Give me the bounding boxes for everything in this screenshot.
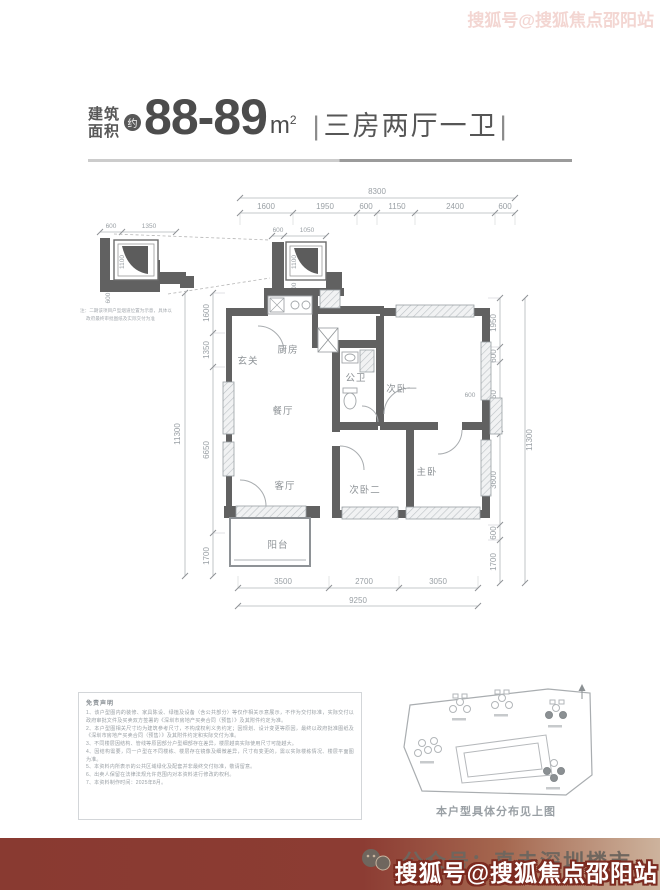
svg-text:3050: 3050 <box>429 577 447 586</box>
site-caption: 本户型具体分布见上图 <box>436 804 556 818</box>
svg-text:2400: 2400 <box>446 202 464 211</box>
area-value: 88-89 <box>144 92 267 142</box>
svg-text:1100: 1100 <box>291 255 298 269</box>
svg-text:600: 600 <box>105 292 112 303</box>
layout-text: |三房两厅一卫| <box>311 104 511 143</box>
svg-text:1350: 1350 <box>142 223 157 230</box>
area-prefix-line2: 面积 <box>88 123 120 140</box>
area-unit: m2 <box>270 112 297 140</box>
watermark-bottom: 搜狐号@搜狐焦点邵阳站 <box>395 854 658 888</box>
room-master: 主卧 <box>416 466 437 478</box>
room-bed2: 次卧二 <box>349 484 381 496</box>
disclaimer-item: 6、出卖人保留在法律法规允许范围内对本资料进行修改的权利。 <box>86 772 354 780</box>
area-prefix-line1: 建筑 <box>88 106 120 123</box>
room-bed1: 次卧一 <box>386 383 418 395</box>
svg-text:1950: 1950 <box>316 202 334 211</box>
svg-text:1950: 1950 <box>489 314 498 332</box>
flue-callout-detail: 600 1350 1100 600 注：二期该项目户型烟道位置为示意，具体以 政… <box>80 223 270 322</box>
svg-text:1600: 1600 <box>202 304 211 322</box>
svg-text:600: 600 <box>498 202 512 211</box>
room-kitchen: 厨房 <box>277 344 298 356</box>
disclaimer-item: 3、不同楼层因结构、管线等原因部分户型细部存在差异，楼层越高实际使用尺寸可能越大… <box>86 741 354 749</box>
dim-right-total: 11300 <box>525 429 534 451</box>
area-prefix: 建筑 面积 <box>88 106 120 141</box>
room-living: 客厅 <box>274 480 295 492</box>
disclaimer-item: 2、本户型图相关尺寸均为建筑参考尺寸，不构成权利义务约定；因规划、设计变更等原因… <box>86 726 354 742</box>
floorplan-page: 搜狐号@搜狐焦点邵阳站 建筑 面积 约 88-89 m2 |三房两厅一卫| 83… <box>0 0 660 890</box>
room-bath: 公卫 <box>345 373 366 384</box>
svg-text:1100: 1100 <box>119 255 126 269</box>
dim-bottom-total: 9250 <box>349 596 367 605</box>
disclaimer-item: 1、该户型图内的装修、家具陈设、绿植及设备（含公共部分）等仅作相关示意展示，不作… <box>86 710 354 726</box>
footer-bar: 公众号：直击深圳楼市 搜狐号@搜狐焦点邵阳站 <box>0 838 660 890</box>
disclaimer-item: 5、本资料内所表示的公共区域绿化及配套并非最终交付标准，敬请留意。 <box>86 764 354 772</box>
svg-text:注：二期该项目户型烟道位置为示意，具体以: 注：二期该项目户型烟道位置为示意，具体以 <box>80 307 172 314</box>
building-cluster-highlighted <box>544 712 567 782</box>
disclaimer-item: 4、因结构需要，同一户型在不同楼栋、楼层存在镜像及细微差异，尺寸有变更的，需以实… <box>86 749 354 765</box>
dim-top-total: 8300 <box>368 187 386 196</box>
svg-text:1150: 1150 <box>388 202 406 211</box>
floorplan-drawing: 8300 1600 1950 600 1150 2400 600 11300 1… <box>80 176 545 636</box>
svg-text:6650: 6650 <box>202 441 211 459</box>
site-plan: 本户型具体分布见上图 <box>398 683 598 823</box>
svg-text:政府最终审批图纸及实际交付为准: 政府最终审批图纸及实际交付为准 <box>86 315 155 322</box>
svg-text:1350: 1350 <box>202 341 211 359</box>
room-entry: 玄关 <box>237 355 258 367</box>
svg-text:600: 600 <box>359 202 373 211</box>
cluster-label-bars <box>420 714 562 790</box>
svg-text:1700: 1700 <box>489 553 498 571</box>
svg-text:1050: 1050 <box>300 227 315 234</box>
svg-text:1600: 1600 <box>257 202 275 211</box>
svg-text:3500: 3500 <box>274 577 292 586</box>
room-dining: 餐厅 <box>272 405 293 417</box>
disclaimer-title: 免责声明 <box>86 698 354 707</box>
wechat-icon <box>360 848 394 874</box>
svg-text:600: 600 <box>106 223 117 230</box>
svg-text:600: 600 <box>273 227 284 234</box>
kitchen-fixtures <box>268 296 312 314</box>
walls <box>224 288 490 518</box>
svg-text:1700: 1700 <box>202 547 211 565</box>
approx-badge: 约 <box>124 114 141 131</box>
elevator-shaft <box>318 328 338 352</box>
disclaimer-box: 免责声明 1、该户型图内的装修、家具陈设、绿植及设备（含公共部分）等仅作相关示意… <box>78 692 362 820</box>
header-underline <box>88 159 572 162</box>
disclaimer-item: 7、本资料制作时间：2025年8月。 <box>86 780 354 788</box>
page-title: 建筑 面积 约 88-89 m2 |三房两厅一卫| <box>88 92 511 143</box>
watermark-top: 搜狐号@搜狐焦点邵阳站 <box>467 6 654 31</box>
svg-text:2700: 2700 <box>355 577 373 586</box>
svg-text:600: 600 <box>465 392 476 399</box>
dim-left-total: 11300 <box>173 423 182 445</box>
room-balcony: 阳台 <box>267 539 288 551</box>
svg-text:600: 600 <box>489 526 498 540</box>
